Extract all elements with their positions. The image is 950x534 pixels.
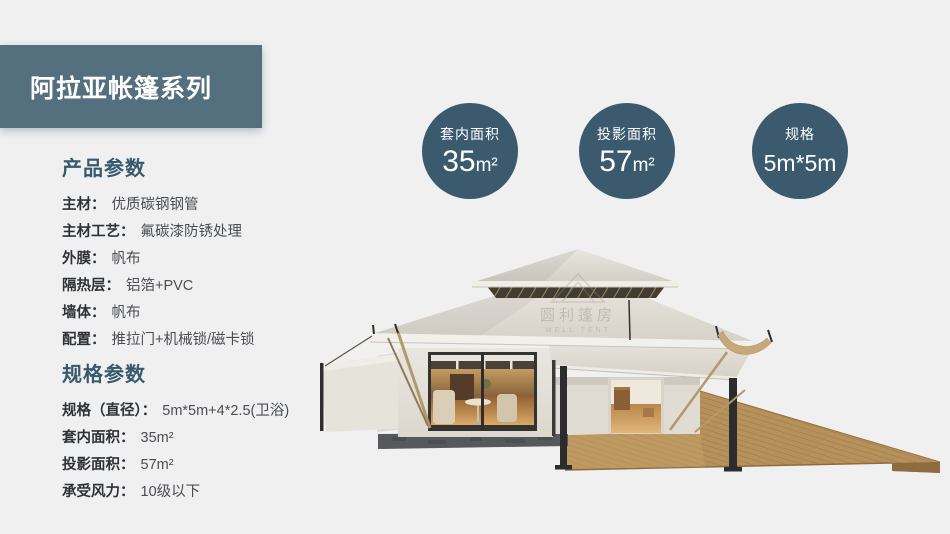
param-row: 配置：推拉门+机械锁/磁卡锁 (62, 332, 255, 348)
param-value: 57m² (141, 457, 174, 473)
param-label: 主材工艺： (62, 224, 135, 240)
tent-porch (553, 377, 700, 434)
param-value: 帆布 (112, 305, 141, 321)
badge-value: 5m*5m (752, 146, 848, 183)
page-title: 阿拉亚帐篷系列 (30, 69, 212, 105)
badge-label: 规格 (752, 124, 848, 144)
badge-value: 35m² (422, 146, 518, 182)
param-value: 推拉门+机械锁/磁卡锁 (112, 332, 255, 348)
badge-size-spec: 规格 5m*5m (752, 103, 848, 199)
param-row: 规格（直径）：5m*5m+4*2.5(卫浴) (62, 403, 289, 419)
product-spec-page: 阿拉亚帐篷系列 产品参数 主材：优质碳钢钢管 主材工艺：氟碳漆防锈处理 外膜：帆… (0, 0, 950, 534)
spec-params-section: 规格参数 规格（直径）：5m*5m+4*2.5(卫浴) 套内面积：35m² 投影… (62, 358, 289, 511)
spec-params-heading: 规格参数 (62, 358, 289, 387)
param-label: 主材： (62, 197, 106, 213)
param-row: 外膜：帆布 (62, 251, 255, 267)
param-label: 墙体： (62, 305, 106, 321)
param-row: 承受风力：10级以下 (62, 484, 289, 500)
param-label: 配置： (62, 332, 106, 348)
param-row: 投影面积：57m² (62, 457, 289, 473)
product-params-heading: 产品参数 (62, 152, 255, 181)
svg-text:圆利篷房: 圆利篷房 (540, 306, 616, 324)
badge-interior-area: 套内面积 35m² (422, 103, 518, 199)
title-banner: 阿拉亚帐篷系列 (0, 45, 262, 128)
param-label: 投影面积： (62, 457, 135, 473)
param-label: 承受风力： (62, 484, 135, 500)
param-value: 5m*5m+4*2.5(卫浴) (162, 403, 289, 419)
param-label: 隔热层： (62, 278, 120, 294)
badge-label: 投影面积 (579, 124, 675, 144)
param-value: 10级以下 (141, 484, 201, 500)
param-row: 主材：优质碳钢钢管 (62, 197, 255, 213)
badge-projection-area: 投影面积 57m² (579, 103, 675, 199)
tent-window (428, 352, 537, 431)
param-label: 外膜： (62, 251, 106, 267)
param-row: 隔热层：铝箔+PVC (62, 278, 255, 294)
param-label: 套内面积： (62, 430, 135, 446)
param-value: 35m² (141, 430, 174, 446)
param-value: 帆布 (112, 251, 141, 267)
tent-cap-roof (472, 249, 678, 287)
param-label: 规格（直径）： (62, 403, 156, 419)
param-row: 主材工艺：氟碳漆防锈处理 (62, 224, 255, 240)
tent-product-image: 圆利篷房 WELL TENT (300, 232, 950, 532)
param-value: 氟碳漆防锈处理 (141, 224, 243, 240)
svg-text:WELL TENT: WELL TENT (545, 327, 611, 334)
badge-value: 57m² (579, 146, 675, 182)
param-row: 墙体：帆布 (62, 305, 255, 321)
product-params-section: 产品参数 主材：优质碳钢钢管 主材工艺：氟碳漆防锈处理 外膜：帆布 隔热层：铝箔… (62, 152, 255, 359)
param-value: 铝箔+PVC (126, 278, 193, 294)
param-row: 套内面积：35m² (62, 430, 289, 446)
param-value: 优质碳钢钢管 (112, 197, 199, 213)
badge-label: 套内面积 (422, 124, 518, 144)
